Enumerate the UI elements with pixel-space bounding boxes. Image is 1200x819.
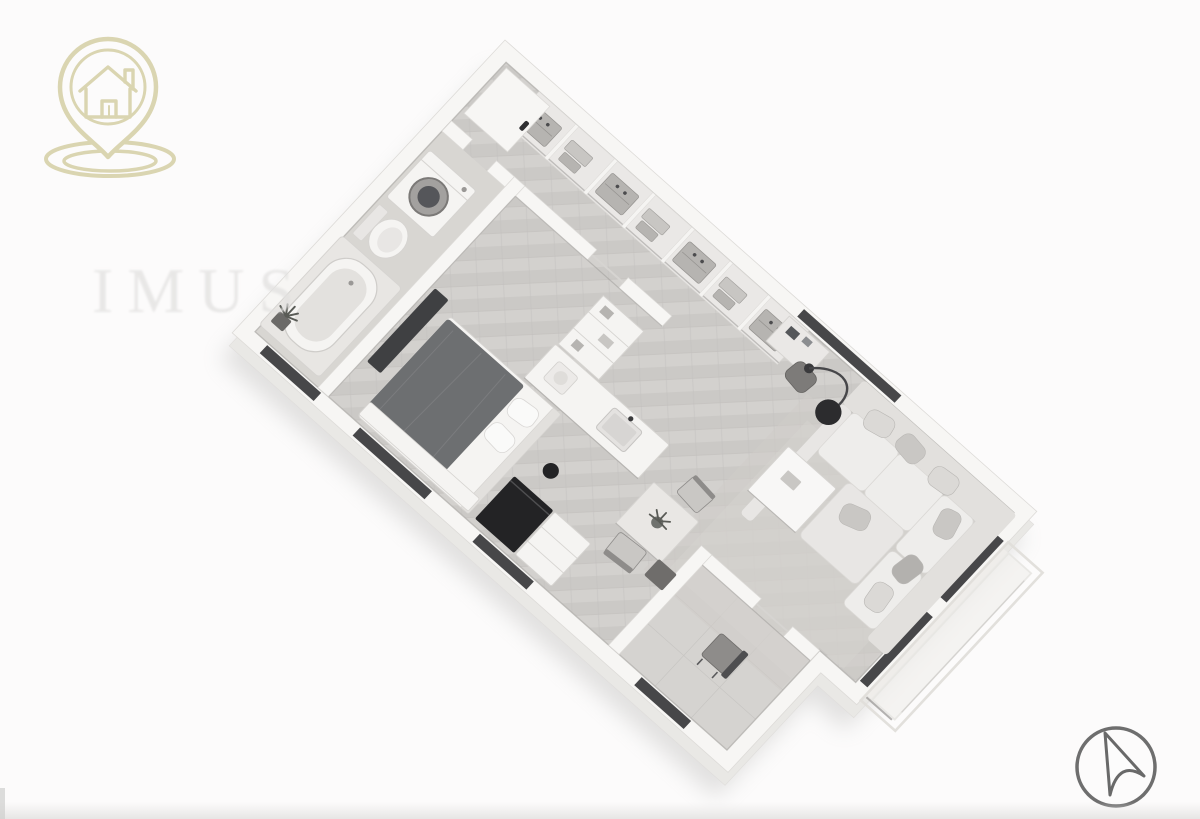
logo-pin-outline (60, 39, 156, 157)
bottom-left-edge-artifact (0, 788, 5, 819)
apartment-plan (232, 40, 1071, 819)
compass-control[interactable] (1077, 728, 1155, 806)
bottom-fade-band (0, 802, 1200, 819)
north-arrow-icon (1105, 733, 1144, 795)
floorplan-render-page: IMUS (0, 0, 1200, 819)
watermark-text: IMUS (92, 255, 308, 326)
house-location-pin-icon (46, 39, 174, 176)
floorplan-render-canvas: IMUS (0, 0, 1200, 819)
